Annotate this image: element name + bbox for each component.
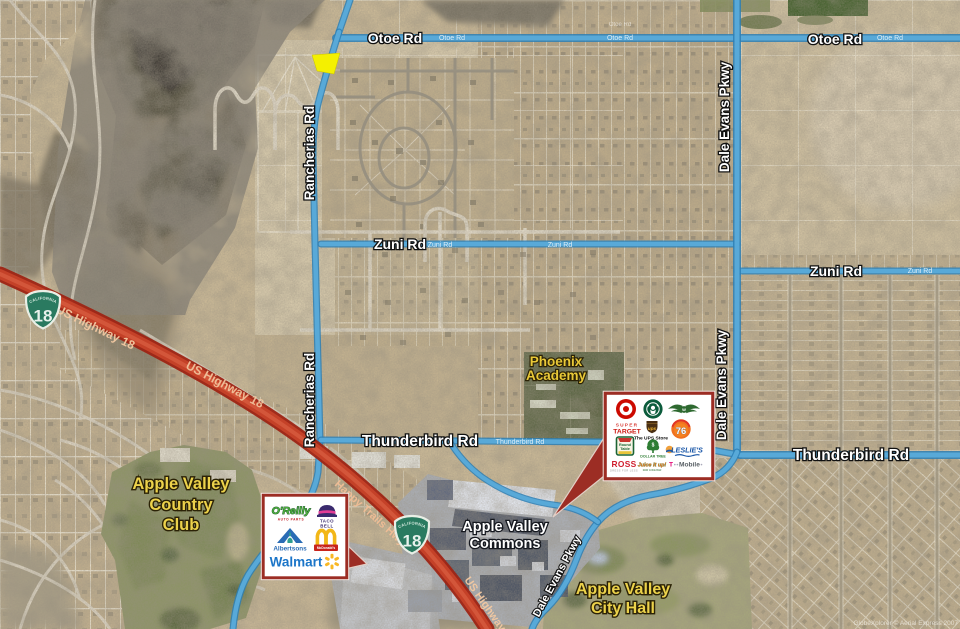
svg-text:Otoe Rd: Otoe Rd bbox=[808, 31, 862, 47]
svg-text:T: T bbox=[669, 462, 673, 469]
svg-text:Dale Evans Pkwy: Dale Evans Pkwy bbox=[717, 61, 732, 172]
svg-text:Apple Valley: Apple Valley bbox=[462, 519, 547, 535]
svg-text:Zuni Rd: Zuni Rd bbox=[548, 242, 573, 249]
svg-text:76: 76 bbox=[676, 425, 686, 436]
svg-text:McDonald's: McDonald's bbox=[317, 546, 336, 550]
svg-text:O'Reilly: O'Reilly bbox=[272, 505, 312, 517]
svg-text:Otoe Rd: Otoe Rd bbox=[877, 35, 903, 42]
svg-text:Zuni Rd: Zuni Rd bbox=[810, 263, 862, 279]
svg-text:TARGET: TARGET bbox=[613, 429, 641, 436]
svg-text:Albertsons: Albertsons bbox=[273, 546, 307, 553]
svg-text:Rancherias Rd: Rancherias Rd bbox=[302, 353, 317, 448]
svg-text:Walmart: Walmart bbox=[270, 555, 323, 570]
svg-text:GlobeXplorer © Aerial Expres: GlobeXplorer © Aerial Express 2007 bbox=[853, 619, 958, 627]
svg-text:Rancherias Rd: Rancherias Rd bbox=[302, 106, 317, 201]
svg-text:Otoe Rd: Otoe Rd bbox=[368, 30, 422, 46]
svg-text:Table: Table bbox=[620, 447, 630, 451]
svg-text:Commons: Commons bbox=[470, 536, 541, 552]
svg-text:Thunderbird Rd: Thunderbird Rd bbox=[496, 439, 545, 446]
svg-text:Academy: Academy bbox=[526, 368, 587, 383]
svg-text:RAW JUICE BAR: RAW JUICE BAR bbox=[643, 469, 662, 472]
svg-text:DRESS FOR LESS: DRESS FOR LESS bbox=[610, 469, 638, 473]
svg-text:Zuni Rd: Zuni Rd bbox=[428, 242, 453, 249]
svg-text:Otoe Rd: Otoe Rd bbox=[607, 35, 633, 42]
svg-text:DOLLAR TREE: DOLLAR TREE bbox=[640, 454, 666, 458]
svg-text:ups: ups bbox=[648, 426, 657, 431]
svg-text:AUTO PARTS: AUTO PARTS bbox=[278, 518, 304, 522]
svg-text:City Hall: City Hall bbox=[591, 600, 655, 617]
svg-text:BELL: BELL bbox=[320, 524, 333, 529]
svg-text:Dale Evans Pkwy: Dale Evans Pkwy bbox=[714, 329, 729, 440]
svg-text:Apple Valley: Apple Valley bbox=[132, 475, 230, 493]
svg-text:Thunderbird Rd: Thunderbird Rd bbox=[793, 447, 909, 464]
svg-text:Juice it up!: Juice it up! bbox=[638, 463, 667, 469]
svg-text:Zuni Rd: Zuni Rd bbox=[908, 268, 933, 275]
svg-text:Otoe Rd: Otoe Rd bbox=[609, 22, 631, 28]
svg-text:W: W bbox=[682, 407, 686, 412]
svg-text:Apple Valley: Apple Valley bbox=[576, 581, 670, 598]
svg-text:$: $ bbox=[652, 443, 655, 449]
svg-text:ROSS: ROSS bbox=[612, 459, 637, 469]
svg-text:Thunderbird Rd: Thunderbird Rd bbox=[362, 433, 478, 450]
svg-text:LESLIE'S: LESLIE'S bbox=[671, 446, 703, 455]
svg-text:Otoe Rd: Otoe Rd bbox=[439, 35, 465, 42]
svg-text:Mobile: Mobile bbox=[679, 462, 700, 469]
svg-text:Zuni Rd: Zuni Rd bbox=[374, 236, 426, 252]
svg-text:Club: Club bbox=[163, 516, 200, 534]
svg-text:Phoenix: Phoenix bbox=[530, 354, 583, 369]
svg-text:Country: Country bbox=[149, 496, 213, 514]
